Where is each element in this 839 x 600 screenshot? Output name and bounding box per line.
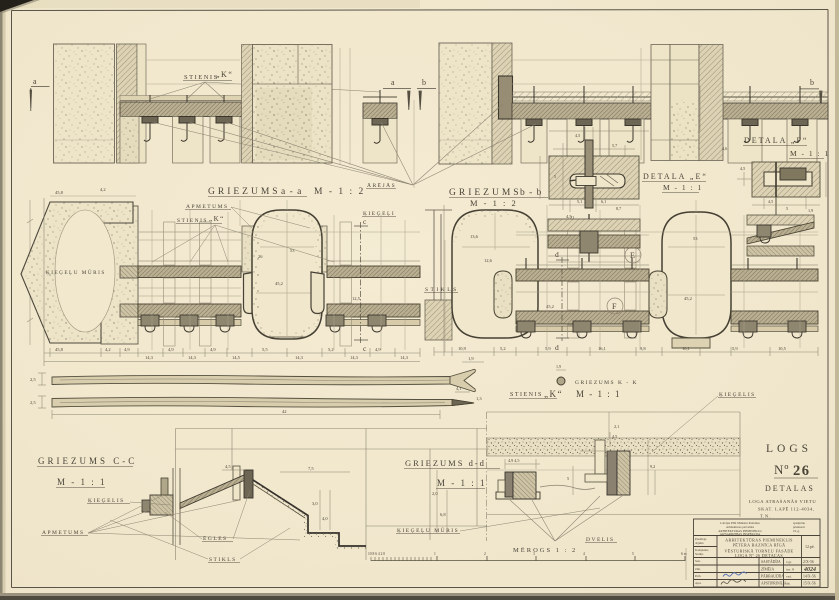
svg-text:5: 5 bbox=[567, 476, 569, 481]
svg-text:Apst.: Apst. bbox=[695, 581, 702, 585]
svg-text:42: 42 bbox=[282, 409, 287, 414]
svg-text:Sast.: Sast. bbox=[695, 559, 701, 563]
svg-text:T.N.: T.N. bbox=[760, 514, 770, 519]
svg-text:DVELIS: DVELIS bbox=[586, 537, 615, 543]
svg-text:GRIEZUMS C-C: GRIEZUMS C-C bbox=[38, 456, 137, 466]
svg-text:inv. N: inv. N bbox=[786, 568, 795, 572]
svg-text:PĒTERA BAZNĪCA RĪGĀ: PĒTERA BAZNĪCA RĪGĀ bbox=[733, 543, 786, 548]
svg-text:F: F bbox=[612, 302, 618, 311]
svg-text:DETALA „F“: DETALA „F“ bbox=[744, 136, 808, 145]
svg-text:SASTĀDĪJA: SASTĀDĪJA bbox=[761, 559, 781, 564]
svg-text:vad.: vad. bbox=[786, 575, 792, 579]
svg-text:ĶIEĢEĻU MŪRIS: ĶIEĢEĻU MŪRIS bbox=[397, 527, 459, 534]
svg-text:AIZSARDZIBAS INSPEKCIJA: AIZSARDZIBAS INSPEKCIJA bbox=[720, 532, 761, 536]
svg-text:STIENIS: STIENIS bbox=[510, 392, 543, 398]
svg-text:ĶIEĢELIS: ĶIEĢELIS bbox=[88, 498, 125, 504]
svg-text:c: c bbox=[363, 217, 368, 226]
svg-text:19..g.: 19..g. bbox=[793, 529, 800, 533]
svg-text:LOGA Nº 26 DETAĽAS: LOGA Nº 26 DETAĽAS bbox=[735, 553, 783, 558]
svg-text:M - 1 : 1: M - 1 : 1 bbox=[576, 389, 621, 399]
svg-text:APSTIPRINĀJA: APSTIPRINĀJA bbox=[761, 581, 787, 586]
svg-text:ZĪMĒJA: ZĪMĒJA bbox=[761, 567, 774, 572]
svg-text:GRIEZUMS d-d: GRIEZUMS d-d bbox=[405, 458, 486, 468]
svg-text:10 8 6 4 2 0: 10 8 6 4 2 0 bbox=[368, 552, 385, 556]
svg-text:GRIEZUMS K - K: GRIEZUMS K - K bbox=[575, 380, 638, 386]
svg-text:M - 1 : 1: M - 1 : 1 bbox=[663, 183, 703, 192]
svg-text:ĀRĒJĀS: ĀRĒJĀS bbox=[367, 182, 396, 189]
svg-text:Nº: Nº bbox=[774, 462, 789, 477]
svg-text:ĶIEĢEĻU MŪRIS: ĶIEĢEĻU MŪRIS bbox=[46, 269, 106, 276]
svg-text:3: 3 bbox=[533, 552, 535, 556]
svg-text:5: 5 bbox=[786, 206, 788, 211]
svg-text:26: 26 bbox=[793, 463, 811, 479]
svg-text:ĒGLES: ĒGLES bbox=[203, 535, 228, 542]
svg-text:1: 1 bbox=[434, 552, 436, 556]
svg-text:DETALAS: DETALAS bbox=[765, 484, 815, 493]
svg-text:a: a bbox=[391, 78, 396, 87]
svg-text:a: a bbox=[33, 77, 38, 86]
svg-text:GRIEZUMS: GRIEZUMS bbox=[449, 188, 522, 198]
svg-text:GRIEZUMS: GRIEZUMS bbox=[208, 187, 281, 197]
svg-text:„K“: „K“ bbox=[544, 389, 563, 399]
svg-text:53: 53 bbox=[290, 248, 295, 253]
svg-text:d: d bbox=[555, 343, 560, 352]
svg-text:STIKLS: STIKLS bbox=[209, 557, 237, 563]
svg-text:DETALA „E“: DETALA „E“ bbox=[643, 172, 708, 181]
svg-text:53: 53 bbox=[693, 236, 698, 241]
svg-text:M - 1 : 2: M - 1 : 2 bbox=[314, 187, 365, 197]
svg-text:ĶIEĢEĻI: ĶIEĢEĻI bbox=[363, 211, 395, 217]
svg-text:5: 5 bbox=[554, 174, 556, 179]
svg-text:d: d bbox=[555, 250, 560, 259]
svg-text:26: 26 bbox=[258, 254, 263, 259]
svg-text:M - 1 : 2: M - 1 : 2 bbox=[470, 198, 518, 208]
svg-text:ĶIEĢELIS: ĶIEĢELIS bbox=[719, 392, 756, 398]
svg-text:5: 5 bbox=[632, 552, 634, 556]
svg-text:c: c bbox=[363, 344, 368, 353]
svg-text:M - 1 : 1: M - 1 : 1 bbox=[437, 478, 487, 488]
svg-text:STIKLS: STIKLS bbox=[425, 287, 459, 293]
svg-text:„K“: „K“ bbox=[216, 70, 233, 79]
svg-text:E: E bbox=[630, 251, 636, 260]
svg-text:MĒROGS 1 : 2: MĒROGS 1 : 2 bbox=[513, 547, 577, 554]
svg-text:M - 1 : 1: M - 1 : 1 bbox=[790, 149, 830, 158]
svg-text:b: b bbox=[810, 78, 816, 87]
svg-text:STIENIS: STIENIS bbox=[184, 74, 219, 81]
svg-text:M - 1 : 1: M - 1 : 1 bbox=[57, 477, 107, 487]
svg-text:APMETUMS: APMETUMS bbox=[42, 530, 85, 536]
svg-text:14/X-56: 14/X-56 bbox=[803, 575, 816, 579]
svg-text:b: b bbox=[422, 78, 428, 87]
svg-text:4024: 4024 bbox=[803, 567, 816, 573]
svg-text:15/X-56: 15/X-56 bbox=[803, 582, 816, 586]
svg-text:2: 2 bbox=[484, 552, 486, 556]
svg-text:STIENIS: STIENIS bbox=[177, 218, 208, 224]
svg-text:LOGS: LOGS bbox=[766, 443, 812, 455]
svg-text:APMETUMS: APMETUMS bbox=[186, 204, 229, 210]
svg-text:objekts: objekts bbox=[695, 541, 704, 545]
svg-text:12.pē.: 12.pē. bbox=[805, 544, 815, 549]
svg-text:Stadija: Stadija bbox=[695, 552, 704, 556]
svg-text:Zim.: Zim. bbox=[695, 567, 701, 571]
svg-text:b - b: b - b bbox=[520, 188, 542, 198]
svg-text:2/X-56: 2/X-56 bbox=[803, 560, 814, 564]
svg-text:a - a: a - a bbox=[281, 187, 302, 197]
svg-text:LOGA ATRAŠANĀS VIETU: LOGA ATRAŠANĀS VIETU bbox=[749, 499, 816, 504]
svg-text:4: 4 bbox=[583, 552, 585, 556]
svg-text:Parb.: Parb. bbox=[695, 574, 701, 578]
svg-text:„K“: „K“ bbox=[209, 215, 225, 223]
svg-text:dir.: dir. bbox=[786, 582, 791, 586]
svg-text:v.gr.: v.gr. bbox=[786, 560, 792, 564]
svg-text:PĀRBAUDĪJA: PĀRBAUDĪJA bbox=[761, 574, 784, 579]
